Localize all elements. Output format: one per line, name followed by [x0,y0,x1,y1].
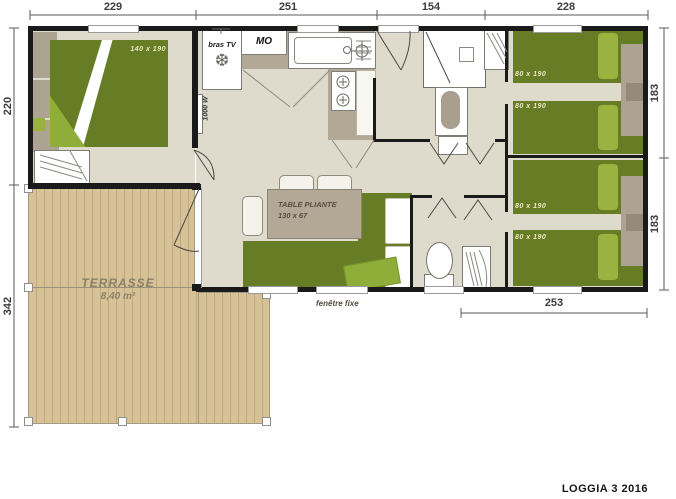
window [248,286,298,294]
bed-throw [50,40,168,147]
wc-wall-top [410,195,432,198]
dim-top-3: 154 [401,1,461,13]
bedside-unit [626,214,643,231]
master-wardrobe [34,150,90,184]
cooktop [331,71,356,111]
single-bed-size: 80 x 190 [515,234,546,241]
bedroom-wall [505,26,508,82]
deck-post [262,417,271,426]
single-bed-size: 80 x 190 [515,71,546,78]
plan-title: LOGGIA 3 2016 [498,483,648,495]
table-size-label: 130 x 67 [278,211,307,220]
wall-cap [192,284,201,291]
heater-label: 1000 W [203,81,210,137]
master-bed [50,40,168,147]
deck-post [118,417,127,426]
fixed-window [316,286,368,294]
terrace-bay-door [194,188,202,288]
window [88,25,139,33]
dim-left-1: 220 [2,76,14,136]
shower-drain [459,47,474,62]
wc-wall-left [410,195,413,290]
window [424,286,464,294]
fixed-window-label: fenêtre fixe [316,299,359,308]
single-bed-size: 80 x 190 [515,103,546,110]
window [378,25,419,33]
wall-cap [192,184,201,190]
bathroom-wall [373,78,376,141]
toilet-bowl [426,242,453,279]
terrace-deck-extension [198,292,270,424]
pillow [598,164,618,210]
bedroom-wall [505,158,508,212]
sofa-seat [243,241,360,288]
wc-wardrobe [462,246,491,290]
dining-chair [242,196,263,236]
wall-between-bedrooms [505,155,648,158]
exterior-wall-right [643,26,648,292]
master-bed-size-label: 140 x 190 [96,46,166,53]
master-bottom-wall [28,183,200,189]
folding-table: TABLE PLIANTE 130 x 67 [267,189,362,239]
deck-post [24,417,33,426]
bedroom-wall [505,232,508,290]
wc-wall-top [464,195,508,198]
window [297,25,339,33]
terrace-deck [28,188,200,424]
microwave-label: MO [242,36,286,47]
pillow [598,105,618,150]
partition-master-living [192,26,198,148]
pillow [598,234,618,280]
window [533,286,582,294]
single-bed-size: 80 x 190 [515,203,546,210]
table-label: TABLE PLIANTE [278,200,337,209]
sofa-cushion [385,198,412,244]
dim-right-2: 183 [649,194,661,254]
bedroom-wall [505,104,508,155]
dim-bottom-right: 253 [524,297,584,309]
sink-bowl [294,37,352,64]
floor-plan: 140 x 190 bras TV ❆ MO 1000 W TABLE PLIA… [0,0,676,499]
microwave: MO [241,30,287,55]
master-cushion [33,118,45,131]
freezer-icon: ❆ [203,51,241,71]
bedside-unit [626,83,643,101]
dim-top-2: 251 [258,1,318,13]
window [533,25,582,33]
exterior-wall-left [28,26,33,188]
tv-arm-label: bras TV [205,40,239,49]
dim-left-2: 342 [2,276,14,336]
shower-cabin [423,29,486,88]
hall-wall [415,139,430,142]
pillow [598,33,618,79]
dim-right-1: 183 [649,63,661,123]
dim-top-1: 229 [83,1,143,13]
terrace-area-label: 8,40 m² [58,291,178,302]
deck-post [24,283,33,292]
terrace-label: TERRASSE [58,276,178,290]
washbasin [441,91,460,129]
dim-top-4: 228 [536,1,596,13]
bathroom-wall-bottom [373,139,415,142]
bath-cabinet [438,136,468,155]
